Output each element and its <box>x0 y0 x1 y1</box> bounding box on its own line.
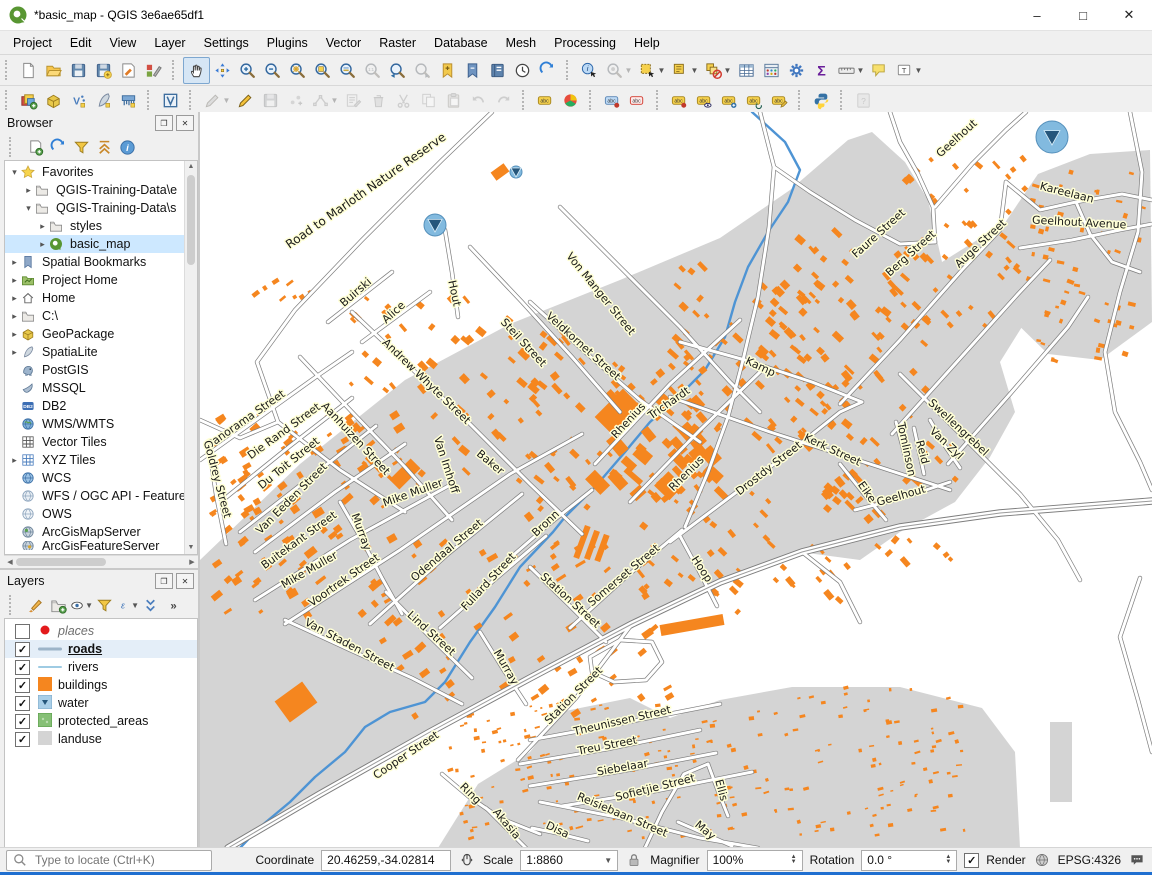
cut-features-button <box>391 88 416 113</box>
qgis-project-icon <box>48 236 66 252</box>
browser-item-postgis[interactable]: PostGIS <box>5 361 184 379</box>
statistics-button[interactable]: Σ <box>809 58 834 83</box>
redo-button <box>491 88 516 113</box>
locate-input[interactable] <box>33 852 207 868</box>
bookmark-manager-button[interactable] <box>485 58 510 83</box>
star-icon <box>20 164 38 180</box>
locate-box[interactable] <box>6 850 212 871</box>
browser-item-label: GeoPackage <box>42 327 114 341</box>
expand-collapse-button[interactable] <box>139 594 162 617</box>
open-project-button[interactable] <box>41 58 66 83</box>
menu-database[interactable]: Database <box>425 33 497 53</box>
project-home-icon <box>20 272 38 288</box>
layer-name-label: buildings <box>58 678 107 692</box>
browser-item-label: Spatial Bookmarks <box>42 255 146 269</box>
layer-item-rivers[interactable]: ✓rivers <box>5 658 197 676</box>
properties-widget-button[interactable]: i <box>116 136 139 159</box>
layer-checkbox-roads[interactable]: ✓ <box>15 642 30 657</box>
toolbar-drag-handle[interactable] <box>566 60 574 80</box>
multiedit-attributes-button <box>341 88 366 113</box>
layers-float-button[interactable]: ❐ <box>155 573 173 589</box>
browser-horizontal-scrollbar[interactable]: ◀▶ <box>4 555 198 568</box>
building <box>830 827 835 831</box>
building <box>1096 347 1101 353</box>
browser-item-label: Project Home <box>42 273 118 287</box>
spatialite-icon <box>20 344 38 360</box>
mssql-icon <box>20 380 38 396</box>
temporal-controller-button[interactable] <box>510 58 535 83</box>
browser-close-button[interactable]: ✕ <box>176 115 194 131</box>
select-features-button[interactable]: ▼ <box>635 58 668 83</box>
open-layer-styling-button[interactable] <box>24 594 47 617</box>
svg-text:T: T <box>901 65 906 74</box>
drive-icon <box>20 308 38 324</box>
zoom-in-button[interactable] <box>235 58 260 83</box>
layer-item-water[interactable]: ✓water <box>5 694 197 712</box>
browser-item-xyz-tiles[interactable]: ▸XYZ Tiles <box>5 451 184 469</box>
building <box>947 772 951 775</box>
building <box>789 788 793 791</box>
building <box>898 741 902 745</box>
db2-icon: DB2 <box>20 398 38 414</box>
layout-manager-button[interactable] <box>116 58 141 83</box>
browser-item-label: styles <box>70 219 102 233</box>
browser-item-ows[interactable]: OWS <box>5 505 184 523</box>
map-canvas[interactable]: Road to Marloth Nature ReserveBuirskiAli… <box>200 112 1152 848</box>
svg-text:abc: abc <box>774 98 783 104</box>
home-icon <box>20 290 38 306</box>
landuse-polygon <box>1050 722 1072 802</box>
menu-bar: ProjectEditViewLayerSettingsPluginsVecto… <box>0 31 1152 55</box>
building <box>666 767 672 771</box>
browser-item-label: XYZ Tiles <box>42 453 96 467</box>
layer-item-places[interactable]: places <box>5 622 197 640</box>
menu-layer[interactable]: Layer <box>145 33 194 53</box>
browser-item-label: WFS / OGC API - Feature <box>42 489 184 503</box>
menu-plugins[interactable]: Plugins <box>258 33 317 53</box>
new-spatial-bookmark-button[interactable] <box>435 58 460 83</box>
layer-name-label: landuse <box>58 732 102 746</box>
menu-settings[interactable]: Settings <box>195 33 258 53</box>
building <box>710 740 713 743</box>
svg-text:V: V <box>73 96 80 107</box>
building <box>960 750 963 753</box>
browser-item-label: Home <box>42 291 75 305</box>
messages-icon[interactable] <box>1128 851 1146 869</box>
building <box>556 773 560 776</box>
toolbar-drag-handle[interactable] <box>840 90 848 110</box>
browser-item-label: QGIS-Training-Data\s <box>56 201 176 215</box>
move-label-diagram-button[interactable]: abc <box>717 88 742 113</box>
new-mesh-button[interactable] <box>116 88 141 113</box>
layer-name-label: roads <box>68 642 102 656</box>
crs-globe-icon[interactable] <box>1033 851 1051 869</box>
filter-legend-button[interactable] <box>93 594 116 617</box>
geopackage-icon <box>20 326 38 342</box>
arcgis-map-icon <box>20 524 38 540</box>
move-label-button[interactable]: abc <box>667 88 692 113</box>
add-selected-layers-button[interactable] <box>24 136 47 159</box>
menu-processing[interactable]: Processing <box>545 33 625 53</box>
identify-features-button[interactable]: i <box>577 58 602 83</box>
delete-selected-button <box>366 88 391 113</box>
new-virtual-layer-button[interactable] <box>158 88 183 113</box>
layer-diagram-button[interactable] <box>558 88 583 113</box>
layer-checkbox-rivers[interactable]: ✓ <box>15 660 30 675</box>
svg-text:abc: abc <box>632 98 641 104</box>
qgis-logo-icon <box>8 5 28 25</box>
undo-button <box>466 88 491 113</box>
postgis-icon <box>20 362 38 378</box>
overflow-chevrons-button[interactable]: » <box>162 594 185 617</box>
search-icon <box>11 851 29 869</box>
folder-icon <box>34 200 52 216</box>
copy-features-button <box>416 88 441 113</box>
toolbar-drag-handle[interactable] <box>656 90 664 110</box>
new-project-button[interactable] <box>16 58 41 83</box>
save-project-button[interactable] <box>66 58 91 83</box>
layers-panel-title: Layers <box>7 574 152 588</box>
zoom-to-layer-button[interactable] <box>335 58 360 83</box>
browser-item-label: WCS <box>42 471 71 485</box>
manage-map-themes-button[interactable]: ▼ <box>70 594 93 617</box>
render-label: Render <box>986 853 1025 867</box>
browser-vertical-scrollbar[interactable]: ▲▼ <box>184 161 197 554</box>
new-shapefile-button[interactable]: V <box>66 88 91 113</box>
qgis-window: *basic_map - QGIS 3e6ae65df1 – □ ✕ Proje… <box>0 0 1152 875</box>
browser-panel-title: Browser <box>7 116 152 130</box>
toolbar-drag-handle[interactable] <box>589 90 597 110</box>
scale-label: Scale <box>483 853 513 867</box>
toolbar-row-2: V▼▼abcabcabcabcabcabcabcabc? <box>0 86 1152 115</box>
bookmarks-icon <box>20 254 38 270</box>
browser-item-label: DB2 <box>42 399 66 413</box>
menu-vector[interactable]: Vector <box>317 33 370 53</box>
expander-closed-icon[interactable]: ▸ <box>23 185 34 196</box>
filter-expression-button[interactable]: ε▼ <box>116 594 139 617</box>
deselect-features-button[interactable]: ▼ <box>701 58 734 83</box>
building <box>642 836 645 839</box>
browser-item-label: OWS <box>42 507 72 521</box>
browser-item-home[interactable]: ▸Home <box>5 289 184 307</box>
layer-symbol-protected-fill <box>38 713 52 730</box>
svg-text:DB2: DB2 <box>23 404 33 410</box>
layer-name-label: water <box>58 696 89 710</box>
highlight-labels-button[interactable]: abc <box>625 88 650 113</box>
toolbar-row-1: 1:1i▼▼▼▼Σ▼T▼ <box>0 55 1152 86</box>
wfs-icon <box>20 488 38 504</box>
layer-symbol-landuse-fill <box>38 731 52 748</box>
run-feature-action-button: ▼ <box>602 58 635 83</box>
expander-closed-icon[interactable]: ▸ <box>9 275 20 286</box>
refresh-map-button[interactable] <box>535 58 560 83</box>
svg-text:?: ? <box>861 95 866 105</box>
text-annotation-button[interactable]: T▼ <box>892 58 925 83</box>
expander-open-icon[interactable]: ▾ <box>23 203 34 214</box>
filter-browser-button[interactable] <box>70 136 93 159</box>
expander-closed-icon[interactable]: ▸ <box>37 239 48 250</box>
building <box>888 823 894 827</box>
browser-item-wcs[interactable]: WCS <box>5 469 184 487</box>
layer-symbol-buildings-fill <box>38 677 52 694</box>
rotate-label-button[interactable]: abc <box>742 88 767 113</box>
building <box>838 714 843 718</box>
data-source-manager-button[interactable] <box>16 88 41 113</box>
add-feature-button <box>283 88 308 113</box>
toolbar-drag-handle[interactable] <box>5 60 13 80</box>
lock-scale-icon[interactable] <box>625 851 643 869</box>
collapse-all-button[interactable] <box>93 136 116 159</box>
svg-text:Σ: Σ <box>817 63 826 79</box>
layer-item-protected_areas[interactable]: ✓protected_areas <box>5 712 197 730</box>
browser-item-label: Vector Tiles <box>42 435 107 449</box>
extent-tracking-icon[interactable] <box>458 851 476 869</box>
zoom-out-button[interactable] <box>260 58 285 83</box>
toggle-editing-button[interactable] <box>233 88 258 113</box>
xyz-tiles-icon <box>20 452 38 468</box>
new-geopackage-button[interactable] <box>41 88 66 113</box>
building <box>749 716 755 720</box>
building <box>774 809 777 811</box>
browser-item-label: ArcGisFeatureServer <box>42 541 159 550</box>
layer-checkbox-protected_areas[interactable]: ✓ <box>15 714 30 729</box>
browser-item-label: MSSQL <box>42 381 86 395</box>
browser-tree: ▾Favorites▸QGIS-Training-Data\e▾QGIS-Tra… <box>5 161 184 554</box>
browser-item-spatialite[interactable]: ▸SpatiaLite <box>5 343 184 361</box>
toolbar-drag-handle[interactable] <box>522 90 530 110</box>
save-edits-button <box>258 88 283 113</box>
rotation-label: Rotation <box>810 853 855 867</box>
expander-closed-icon[interactable]: ▸ <box>9 347 20 358</box>
attribute-table-button[interactable] <box>734 58 759 83</box>
current-edits-button: ▼ <box>200 88 233 113</box>
zoom-native-button: 1:1 <box>360 58 385 83</box>
change-label-button[interactable]: abc <box>767 88 792 113</box>
building <box>799 833 802 836</box>
browser-float-button[interactable]: ❐ <box>155 115 173 131</box>
show-hide-labels-button[interactable]: abc <box>692 88 717 113</box>
browser-item-vector-tiles[interactable]: Vector Tiles <box>5 433 184 451</box>
building <box>710 724 716 728</box>
layer-checkbox-buildings[interactable]: ✓ <box>15 678 30 693</box>
layers-close-button[interactable]: ✕ <box>176 573 194 589</box>
minimize-button[interactable]: – <box>1014 0 1060 30</box>
browser-item-arcgisfeatureserver[interactable]: ArcGisFeatureServer <box>5 541 184 550</box>
maximize-button[interactable]: □ <box>1060 0 1106 30</box>
browser-item-label: WMS/WMTS <box>42 417 114 431</box>
building <box>948 794 953 798</box>
toolbar-drag-handle[interactable] <box>189 90 197 110</box>
building <box>664 755 668 758</box>
toolbar-drag-handle[interactable] <box>798 90 806 110</box>
browser-item-label: Favorites <box>42 165 93 179</box>
building <box>930 749 934 752</box>
pan-to-selection-button[interactable] <box>210 58 235 83</box>
building <box>889 688 892 692</box>
style-manager-button[interactable] <box>141 58 166 83</box>
arcgis-feature-icon <box>20 541 38 550</box>
render-checkbox[interactable]: ✓ <box>964 853 979 868</box>
browser-item-label: QGIS-Training-Data\e <box>56 183 177 197</box>
zoom-to-selection-button[interactable] <box>310 58 335 83</box>
menu-edit[interactable]: Edit <box>61 33 101 53</box>
layer-item-roads[interactable]: ✓roads <box>5 640 197 658</box>
layers-panel: Layers ❐ ✕ ▼ε▼» places✓roads✓rivers✓buil… <box>0 568 198 848</box>
expander-closed-icon[interactable]: ▸ <box>9 455 20 466</box>
expander-closed-icon[interactable]: ▸ <box>9 311 20 322</box>
building <box>881 807 884 810</box>
browser-item-arcgismapserver[interactable]: ArcGisMapServer <box>5 523 184 541</box>
layers-list: places✓roads✓rivers✓buildings✓water✓prot… <box>4 618 198 848</box>
layer-item-landuse[interactable]: ✓landuse <box>5 730 197 748</box>
browser-item-geopackage[interactable]: ▸GeoPackage <box>5 325 184 343</box>
magnifier-label: Magnifier <box>650 853 699 867</box>
svg-text:»: » <box>170 600 176 612</box>
building <box>717 814 722 817</box>
left-dock: Browser ❐ ✕ i ▾Favorites▸QGIS-Training-D… <box>0 112 198 848</box>
browser-item-label: ArcGisMapServer <box>42 525 141 539</box>
processing-toolbox-button[interactable] <box>784 58 809 83</box>
pin-labels-button[interactable]: abc <box>600 88 625 113</box>
folder-icon <box>34 182 52 198</box>
help-contents-button: ? <box>851 88 876 113</box>
layer-checkbox-landuse[interactable]: ✓ <box>15 732 30 747</box>
browser-item-basic-map[interactable]: ▸basic_map <box>5 235 184 253</box>
building <box>885 719 889 722</box>
browser-panel: Browser ❐ ✕ i ▾Favorites▸QGIS-Training-D… <box>0 112 198 568</box>
building <box>867 699 870 702</box>
magnifier-spinbox[interactable]: 100%▲▼ <box>707 850 803 871</box>
add-group-button[interactable] <box>47 594 70 617</box>
browser-item-label: SpatiaLite <box>42 345 98 359</box>
coordinate-label: Coordinate <box>255 853 314 867</box>
vertex-tool-button: ▼ <box>308 88 341 113</box>
menu-project[interactable]: Project <box>4 33 61 53</box>
save-project-as-button[interactable] <box>91 58 116 83</box>
expander-closed-icon[interactable]: ▸ <box>9 257 20 268</box>
browser-item-qgis-training-data-s[interactable]: ▾QGIS-Training-Data\s <box>5 199 184 217</box>
show-spatial-bookmarks-button[interactable] <box>460 58 485 83</box>
vector-tiles-icon <box>20 434 38 450</box>
new-spatialite-button[interactable] <box>91 88 116 113</box>
expander-closed-icon[interactable]: ▸ <box>9 329 20 340</box>
menu-help[interactable]: Help <box>625 33 669 53</box>
zoom-last-button[interactable] <box>385 58 410 83</box>
coordinate-value-box[interactable]: 20.46259,-34.02814 <box>321 850 451 871</box>
pan-map-button[interactable] <box>183 57 210 84</box>
close-button[interactable]: ✕ <box>1106 0 1152 30</box>
toolbar-drag-handle[interactable] <box>9 595 17 615</box>
wcs-icon <box>20 470 38 486</box>
select-by-value-button[interactable]: ▼ <box>668 58 701 83</box>
layer-symbol-places-point <box>38 623 52 640</box>
expander-closed-icon[interactable]: ▸ <box>9 293 20 304</box>
building <box>858 748 862 752</box>
zoom-full-button[interactable] <box>285 58 310 83</box>
python-console-button[interactable] <box>809 88 834 113</box>
menu-raster[interactable]: Raster <box>370 33 425 53</box>
browser-item-spatial-bookmarks[interactable]: ▸Spatial Bookmarks <box>5 253 184 271</box>
browser-item-mssql[interactable]: MSSQL <box>5 379 184 397</box>
zoom-next-button <box>410 58 435 83</box>
paste-features-button <box>441 88 466 113</box>
rotation-spinbox[interactable]: 0.0 °▲▼ <box>861 850 957 871</box>
browser-item-project-home[interactable]: ▸Project Home <box>5 271 184 289</box>
building <box>481 749 485 753</box>
wms-icon <box>20 416 38 432</box>
measure-button[interactable]: ▼ <box>834 58 867 83</box>
svg-text:i: i <box>126 143 129 154</box>
browser-item-styles[interactable]: ▸styles <box>5 217 184 235</box>
building <box>910 688 913 691</box>
folder-icon <box>48 218 66 234</box>
toolbar-drag-handle[interactable] <box>172 60 180 80</box>
ows-icon <box>20 506 38 522</box>
scale-combo[interactable]: 1:8860▼ <box>520 850 618 871</box>
svg-text:ε: ε <box>121 600 126 610</box>
browser-item-favorites[interactable]: ▾Favorites <box>5 163 184 181</box>
expander-open-icon[interactable]: ▾ <box>9 167 20 178</box>
layer-checkbox-places[interactable] <box>15 624 30 639</box>
layer-symbol-water-fill <box>38 695 52 712</box>
browser-item-label: basic_map <box>70 237 130 251</box>
layer-labeling-button[interactable]: abc <box>533 88 558 113</box>
expander-closed-icon[interactable]: ▸ <box>37 221 48 232</box>
svg-text:1:1: 1:1 <box>368 66 375 71</box>
building <box>675 765 678 767</box>
field-calculator-button[interactable] <box>759 58 784 83</box>
layer-checkbox-water[interactable]: ✓ <box>15 696 30 711</box>
browser-item-qgis-training-data-e[interactable]: ▸QGIS-Training-Data\e <box>5 181 184 199</box>
status-bar: Coordinate 20.46259,-34.02814 Scale 1:88… <box>0 847 1152 872</box>
layer-symbol-roads-line <box>38 642 62 656</box>
layer-symbol-rivers-line <box>38 660 62 674</box>
layer-item-buildings[interactable]: ✓buildings <box>5 676 197 694</box>
building <box>455 769 459 773</box>
building <box>474 728 477 732</box>
title-bar: *basic_map - QGIS 3e6ae65df1 – □ ✕ <box>0 0 1152 31</box>
crs-value: EPSG:4326 <box>1058 853 1121 867</box>
menu-mesh[interactable]: Mesh <box>497 33 546 53</box>
browser-item-label: C:\ <box>42 309 58 323</box>
svg-text:abc: abc <box>540 98 549 104</box>
layer-name-label: rivers <box>68 660 99 674</box>
toolbar-drag-handle[interactable] <box>147 90 155 110</box>
building <box>499 800 503 803</box>
browser-item-label: PostGIS <box>42 363 89 377</box>
browser-item-wms-wmts[interactable]: WMS/WMTS <box>5 415 184 433</box>
layer-name-label: protected_areas <box>58 714 148 728</box>
building <box>633 800 636 803</box>
layer-name-label: places <box>58 624 94 638</box>
browser-item-db2[interactable]: DB2DB2 <box>5 397 184 415</box>
toolbar-drag-handle[interactable] <box>9 137 17 157</box>
building <box>958 705 964 709</box>
menu-view[interactable]: View <box>100 33 145 53</box>
building <box>498 741 501 744</box>
browser-item-wfs-ogc-api-feature[interactable]: WFS / OGC API - Feature <box>5 487 184 505</box>
map-tips-button[interactable] <box>867 58 892 83</box>
refresh-browser-button[interactable] <box>47 136 70 159</box>
window-title: *basic_map - QGIS 3e6ae65df1 <box>34 8 204 22</box>
toolbar-drag-handle[interactable] <box>5 90 13 110</box>
browser-item-c-[interactable]: ▸C:\ <box>5 307 184 325</box>
